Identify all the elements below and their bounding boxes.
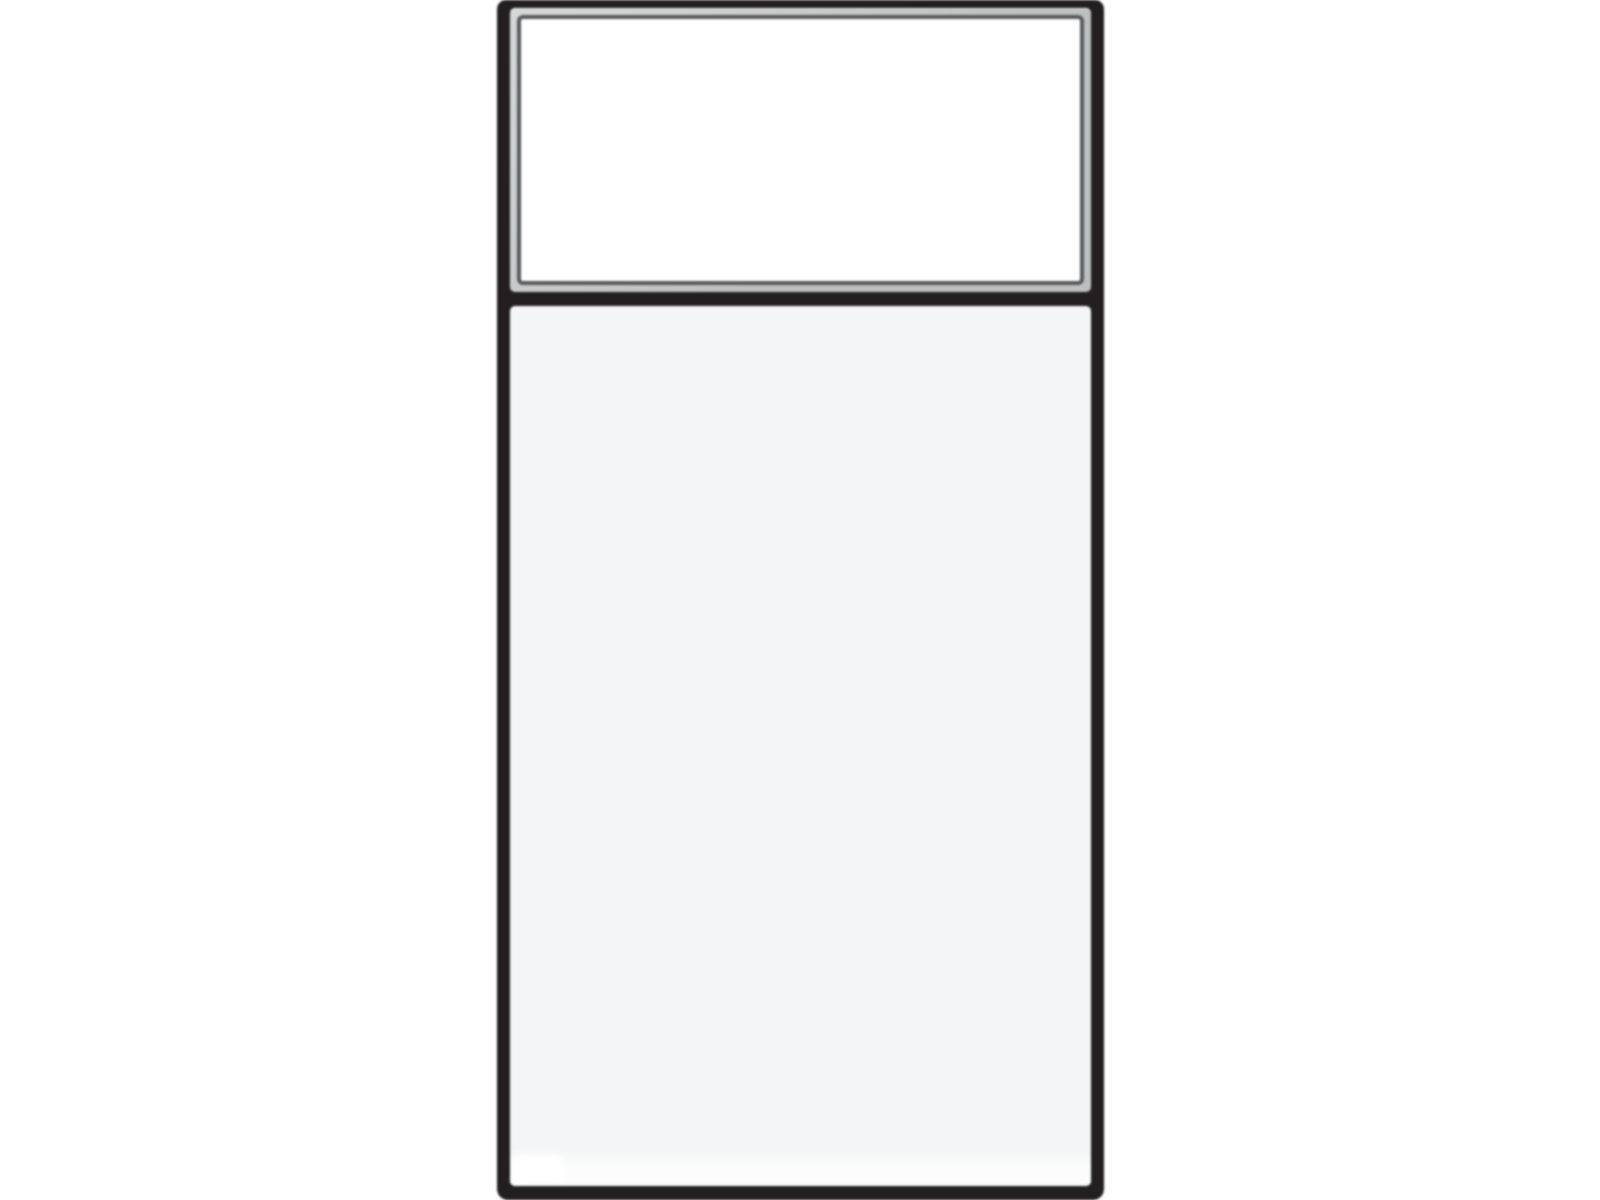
- cabinet-illustration: [497, 0, 1104, 1200]
- drawer-opening-bevel: [510, 8, 1091, 292]
- cabinet-door-panel: [510, 306, 1091, 1186]
- canvas: [0, 0, 1600, 1200]
- drawer-front-panel: [517, 15, 1084, 285]
- door-bottom-highlight: [510, 1150, 1091, 1186]
